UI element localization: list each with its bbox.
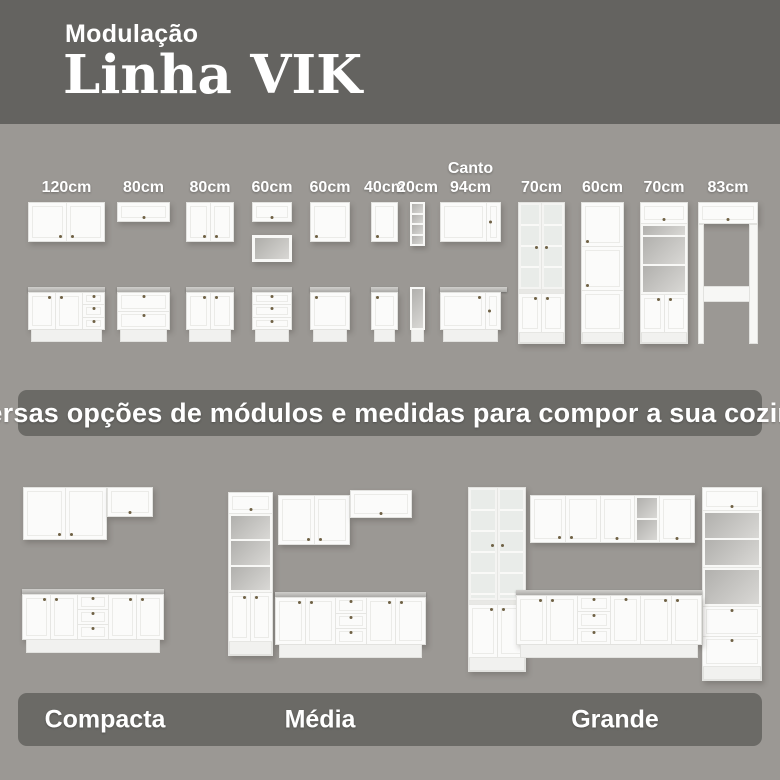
module-label: 83cm (690, 155, 766, 197)
module-col-80cm-flip: 80cm (117, 155, 170, 390)
wall-cabinet-illustration (28, 202, 105, 242)
shelf-cell (231, 567, 270, 590)
plinth (26, 640, 160, 653)
plinth (582, 333, 623, 343)
cabinet-panel (441, 203, 486, 241)
drawer-stack (578, 596, 610, 644)
drawer (118, 293, 169, 311)
shelf-cell (637, 520, 657, 540)
plinth (703, 667, 761, 680)
base-cabinet-illustration (310, 287, 350, 342)
shelf-cell (705, 540, 759, 565)
poster: Modulação Linha VIK 120cm 80cm (0, 0, 780, 780)
wall-cabinet-illustration (252, 202, 292, 222)
shelf-cell (412, 225, 423, 234)
page-title: Linha VIK (63, 44, 362, 106)
base-cabinet-illustration (252, 287, 292, 342)
drawer-stack (336, 598, 366, 644)
cabinet-door (23, 595, 50, 639)
drawer (83, 293, 104, 304)
shelf-cell (412, 204, 423, 213)
cabinet-door (279, 496, 314, 544)
header: Modulação Linha VIK (0, 0, 780, 124)
glass-door (542, 203, 564, 289)
shelf-cell (637, 498, 657, 518)
cabinet-door (441, 293, 485, 329)
cabinet-door (601, 496, 635, 542)
fridge-surround-illustration (698, 202, 758, 344)
wall-cabinet-illustration (117, 202, 170, 222)
shelf-cell (705, 570, 759, 604)
plinth (469, 658, 525, 671)
cabinet-door (51, 595, 78, 639)
module-label: 80cm (109, 155, 178, 197)
plinth (641, 333, 687, 343)
banner-text: Diversas opções de módulos e medidas par… (0, 398, 780, 429)
cabinet-door (372, 203, 397, 241)
cabinet-door (367, 598, 396, 644)
plinth (120, 330, 167, 342)
corner-wall-cabinet-illustration (440, 202, 501, 242)
plinth (255, 330, 289, 342)
legend-bar: Compacta Média Grande (18, 693, 762, 746)
cabinet-door (582, 291, 623, 332)
cabinet-door (699, 203, 757, 223)
cabinet-door (311, 293, 349, 329)
module-col-canto-94cm: Canto 94cm (440, 155, 501, 390)
cabinet-door (582, 203, 623, 246)
base-run-illustration (516, 590, 702, 658)
cabinet-door (29, 293, 55, 329)
module-col-70cm-torre: 70cm (640, 155, 688, 390)
plinth (279, 645, 422, 658)
cabinet-door (582, 247, 623, 290)
drawer (78, 625, 108, 639)
banner: Diversas opções de módulos e medidas par… (18, 390, 762, 436)
drawer (336, 598, 366, 613)
open-shelf-rack-illustration (410, 202, 425, 246)
open-shelves (641, 224, 687, 294)
cabinet-door (108, 488, 152, 516)
cabinet-door (211, 203, 234, 241)
module-label: Canto 94cm (432, 155, 509, 197)
open-shelves (703, 568, 761, 606)
wall-run-illustration (530, 495, 695, 543)
module-col-60cm-door: 60cm (310, 155, 350, 390)
frame-side (698, 224, 704, 344)
shelf-cell (705, 513, 759, 538)
shelf-cell (643, 226, 685, 235)
drawer (336, 629, 366, 644)
cabinet-door (229, 593, 250, 641)
cabinet-door (542, 294, 564, 332)
base-run-illustration (22, 589, 164, 653)
drawer (253, 318, 291, 329)
wall-cabinet-illustration (350, 490, 412, 518)
module-col-120cm: 120cm (28, 155, 105, 390)
cabinet-door (469, 605, 497, 657)
base-cabinet-illustration (28, 287, 105, 342)
module-col-40cm: 40cm (371, 155, 398, 390)
cabinet-door (351, 491, 411, 517)
module-label: 70cm (632, 155, 696, 197)
cabinet-door (519, 294, 541, 332)
plinth (31, 330, 102, 342)
plinth (189, 330, 231, 342)
module-label: 60cm (302, 155, 358, 197)
glass-door (519, 203, 541, 289)
module-col-60cm-niche: 60cm (252, 155, 292, 390)
cabinet-door (315, 496, 350, 544)
cabinet-door (56, 293, 82, 329)
plinth (313, 330, 347, 342)
open-niche-illustration (252, 235, 292, 262)
base-cabinet-illustration (371, 287, 398, 342)
drawer (83, 305, 104, 316)
shelf-cell (412, 236, 423, 245)
corner-base-cabinet-illustration (440, 287, 501, 342)
cabinet-door (187, 293, 210, 329)
open-shelves (635, 496, 659, 542)
drawer (78, 595, 108, 609)
module-col-83cm-frame: 83cm (698, 155, 758, 390)
cabinet-door (672, 596, 701, 644)
plinth (519, 333, 564, 343)
cabinet-door (531, 496, 565, 542)
cabinet-door (487, 203, 500, 241)
cabinet-door (66, 488, 107, 539)
shelf-cell (231, 541, 270, 564)
open-shelves (703, 511, 761, 567)
cabinet-door (118, 203, 169, 221)
cabinet-door (611, 596, 640, 644)
cabinet-door (24, 488, 65, 539)
cabinet-door (396, 598, 425, 644)
drawer (703, 637, 761, 666)
cabinet-door (660, 496, 694, 542)
cabinet-door (109, 595, 136, 639)
legend-grande: Grande (571, 705, 659, 734)
divider (519, 290, 564, 293)
module-col-20cm: 20cm (410, 155, 425, 390)
drawer (336, 614, 366, 629)
plinth (411, 330, 424, 342)
drawer (253, 305, 291, 316)
drawer (578, 612, 610, 627)
shelf-cell (412, 215, 423, 224)
shelf-cell (412, 289, 423, 328)
drawer (253, 293, 291, 304)
cabinet-door (137, 595, 164, 639)
module-label: 60cm (573, 155, 632, 197)
wall-cabinet-illustration (310, 202, 350, 242)
module-col-70cm-cristaleira: 70cm (518, 155, 565, 390)
base-run-illustration (275, 592, 426, 658)
plinth (443, 330, 498, 342)
cabinet-door (29, 203, 66, 241)
module-label: 60cm (244, 155, 300, 197)
drawer (78, 610, 108, 624)
kitchen-compacta-illustration (22, 460, 200, 678)
cabinet-door (187, 203, 210, 241)
cabinet-door (641, 203, 687, 223)
open-shelves (229, 514, 272, 592)
glass-door (498, 488, 526, 600)
glass-door (469, 488, 497, 600)
cabinet-door (703, 488, 761, 510)
kitchen-media-illustration (226, 460, 426, 678)
drawer (578, 629, 610, 644)
wall-cabinet-illustration (107, 487, 153, 517)
kitchen-grande-illustration (458, 455, 764, 687)
drawer-stack (703, 607, 761, 666)
base-cabinet-illustration (410, 287, 425, 342)
cabinet-door (486, 293, 500, 329)
plinth (374, 330, 395, 342)
drawer (703, 607, 761, 636)
legend-media: Média (285, 705, 356, 734)
tall-tower-illustration (702, 487, 762, 681)
wall-cabinet-illustration (278, 495, 350, 545)
module-label: 120cm (20, 155, 113, 197)
drawer (578, 596, 610, 611)
plinth (520, 645, 698, 658)
legend-compacta: Compacta (45, 705, 166, 734)
module-label: 20cm (402, 155, 433, 197)
cabinet-door (311, 203, 349, 241)
plinth (229, 642, 272, 655)
drawer (83, 318, 104, 329)
cabinet-door (276, 598, 305, 644)
shelf-cell (643, 266, 685, 292)
drawer (118, 312, 169, 330)
drawer-stack (83, 293, 104, 329)
cabinet-door (251, 593, 272, 641)
cabinet-door (517, 596, 546, 644)
cabinet-door (665, 295, 688, 332)
tall-tower-illustration (228, 492, 273, 656)
base-cabinet-illustration (186, 287, 234, 342)
tall-pantry-cabinet-illustration (581, 202, 624, 344)
cabinet-door (253, 203, 291, 221)
cabinet-door (566, 496, 600, 542)
cabinet-door (641, 596, 670, 644)
cabinet-door (306, 598, 335, 644)
cabinet-door (372, 293, 397, 329)
cabinet-door (229, 493, 272, 513)
cabinet-door (67, 203, 104, 241)
module-col-80cm-doors: 80cm (186, 155, 234, 390)
wall-cabinet-illustration (23, 487, 107, 540)
cabinet-door (641, 295, 664, 332)
base-cabinet-illustration (117, 287, 170, 342)
module-label: 80cm (178, 155, 242, 197)
tall-glass-cabinet-illustration (518, 202, 565, 344)
frame-side (749, 224, 758, 344)
wall-cabinet-illustration (186, 202, 234, 242)
drawer-stack (78, 595, 108, 639)
shelf-cell (643, 237, 685, 263)
shelf-cell (231, 516, 270, 539)
frame-divider (703, 286, 750, 302)
cabinet-door (211, 293, 234, 329)
tall-oven-tower-illustration (640, 202, 688, 344)
wall-cabinet-illustration (371, 202, 398, 242)
module-col-60cm-paneleiro: 60cm (581, 155, 624, 390)
module-label: 70cm (510, 155, 573, 197)
cabinet-door (547, 596, 576, 644)
